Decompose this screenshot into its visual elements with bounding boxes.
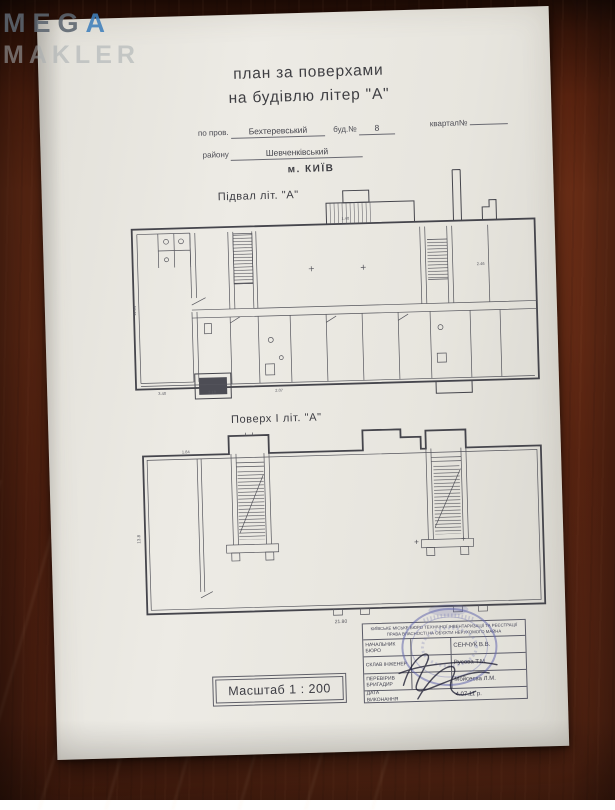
basement-outer-walls [132, 218, 539, 389]
row-label: СКЛАВ ІНЖЕНЕР [364, 656, 412, 673]
dim-text: 11.64 [132, 305, 137, 316]
district-value: Шевченківський [231, 145, 363, 161]
basement-floor-plan: 3.40 2.10 2.07 2.46 1.40 11.64 [126, 164, 544, 403]
dim-text: 1.84 [182, 449, 191, 454]
signature-table: КИЇВСЬКЕ МІСЬКЕ БЮРО ТЕХНІЧНОЇ ІНВЕНТАРИ… [362, 619, 528, 704]
first-floor-plan: 21.80 1.84 13.8 [133, 424, 558, 636]
photo-scene: план за поверхами на будівлю літер "А" п… [0, 0, 615, 800]
row-label: ПЕРЕВІРИВ БРИГАДИР [364, 673, 412, 690]
signature-cell [412, 672, 452, 689]
district-label: району [202, 150, 228, 160]
quarter-label: квартал№ [430, 118, 468, 128]
basement-interior-walls [137, 223, 539, 386]
dim-text: 2.07 [275, 388, 284, 393]
dim-text: 1.40 [341, 216, 350, 221]
entrance-steps-hatch [330, 202, 371, 224]
document-paper: план за поверхами на будівлю літер "А" п… [37, 6, 569, 760]
dim-text: 3.40 [158, 391, 167, 396]
row-value: 4.07.11 р. [411, 687, 527, 701]
floor1-stairs-right-hatch [433, 464, 461, 535]
floor1-plan-label: Поверх І літ. "А" [231, 411, 322, 426]
building-label: буд.№ [333, 124, 357, 134]
scale-text: Масштаб 1 : 200 [215, 676, 344, 704]
street-value: Бехтеревський [231, 124, 325, 139]
row-value: Мойсеєва Л.М. [452, 670, 526, 688]
dim-text: 2.10 [208, 389, 217, 394]
building-value: 8 [359, 122, 395, 135]
scale-box: Масштаб 1 : 200 [212, 673, 347, 707]
basement-stairs-left-hatch [233, 233, 253, 284]
row-label: ДАТА ВИКОНАННЯ [365, 690, 411, 702]
document-title: план за поверхами на будівлю літер "А" [128, 56, 489, 114]
quarter-value [470, 122, 508, 125]
signature-cell [412, 655, 452, 672]
row-label: НАЧАЛЬНИК БЮРО [363, 639, 411, 656]
signature-cell [411, 638, 451, 655]
floor1-stairs-left-hatch [237, 469, 265, 540]
row-value: СЕНЧУК В.В. [451, 636, 525, 654]
row-value: Русова Т.М. [452, 653, 526, 671]
dim-text: 13.8 [136, 534, 141, 543]
quarter-line: квартал№ [430, 117, 508, 128]
dim-text: 2.46 [477, 261, 486, 266]
dim-text: 21.80 [335, 619, 348, 625]
street-label: по пров. [198, 128, 229, 138]
basement-protrusions [189, 169, 501, 400]
address-line: по пров. Бехтеревський буд.№ 8 [198, 122, 395, 139]
basement-stairs-right-hatch [427, 239, 448, 280]
district-line: району Шевченківський [202, 145, 363, 161]
